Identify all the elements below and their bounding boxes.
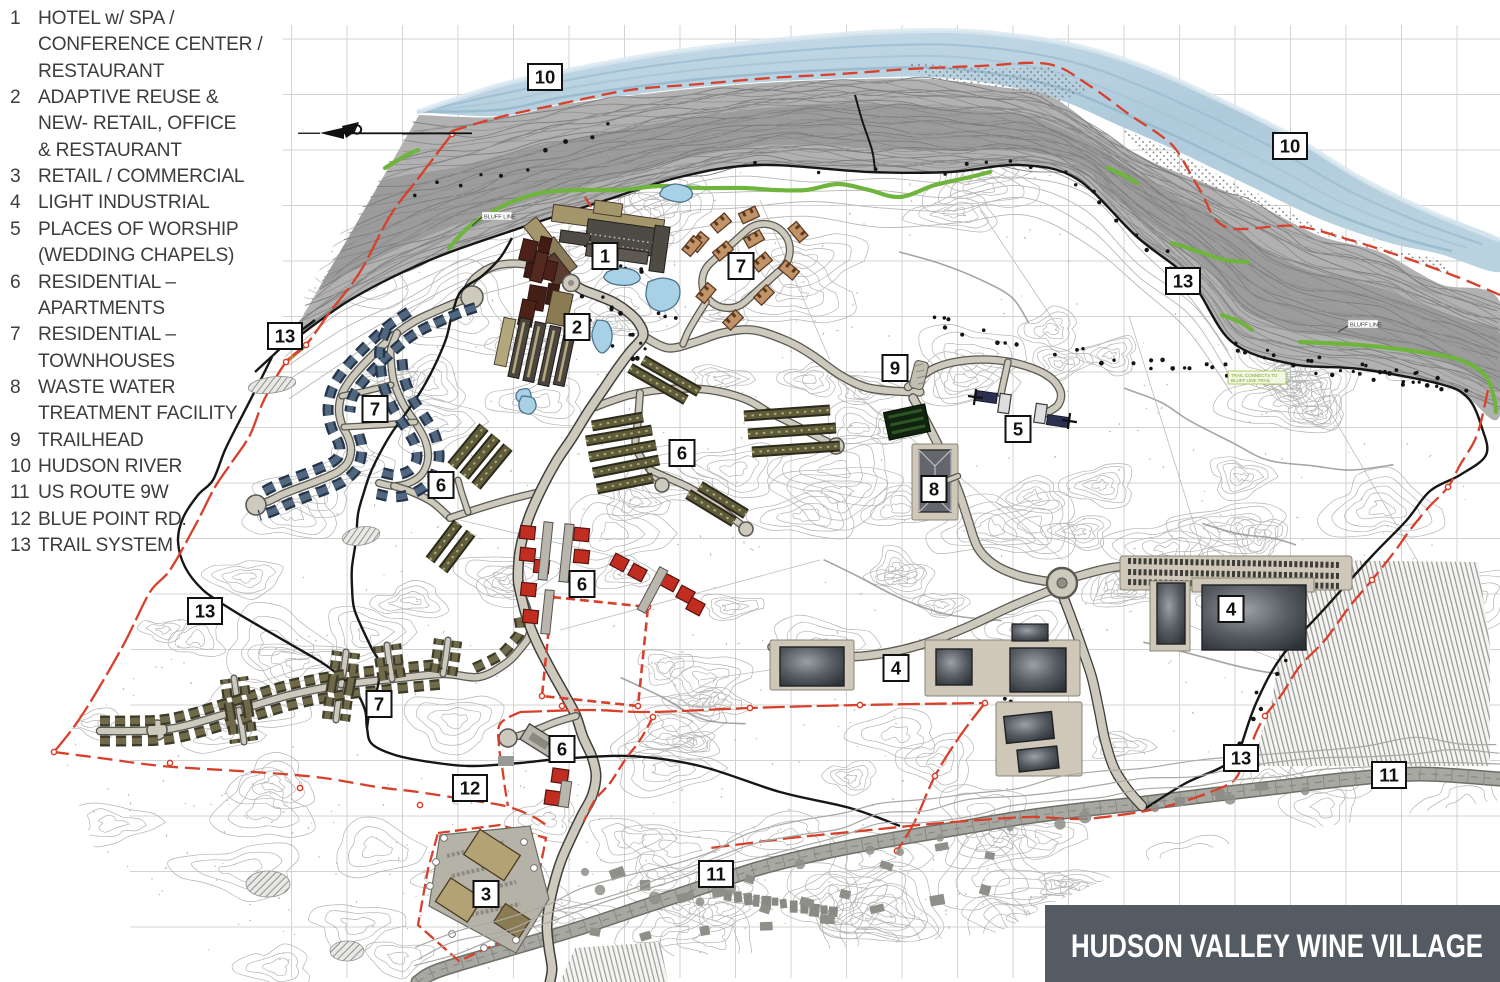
svg-text:6: 6 xyxy=(557,739,567,760)
svg-text:HUDSON RIVER: HUDSON RIVER xyxy=(38,456,182,477)
svg-text:2: 2 xyxy=(10,87,20,108)
svg-text:BLUE POINT RD.: BLUE POINT RD. xyxy=(38,509,187,530)
svg-text:(WEDDING CHAPELS): (WEDDING CHAPELS) xyxy=(38,245,234,266)
svg-text:11: 11 xyxy=(10,482,29,503)
svg-text:TOWNHOUSES: TOWNHOUSES xyxy=(38,351,175,372)
svg-text:10: 10 xyxy=(535,67,556,88)
svg-text:6: 6 xyxy=(436,475,446,496)
svg-text:13: 13 xyxy=(1173,271,1194,292)
svg-text:WASTE WATER: WASTE WATER xyxy=(38,377,175,398)
svg-text:3: 3 xyxy=(481,884,491,905)
svg-text:7: 7 xyxy=(10,324,20,345)
svg-text:3: 3 xyxy=(10,166,20,187)
svg-text:BLUFF LINE TRAIL: BLUFF LINE TRAIL xyxy=(1231,378,1271,383)
svg-text:13: 13 xyxy=(275,326,296,347)
svg-text:2: 2 xyxy=(572,317,582,338)
svg-text:10: 10 xyxy=(10,456,31,477)
svg-text:10: 10 xyxy=(1280,136,1301,157)
svg-text:6: 6 xyxy=(10,272,20,293)
svg-text:RETAIL / COMMERCIAL: RETAIL / COMMERCIAL xyxy=(38,166,245,187)
svg-text:8: 8 xyxy=(929,479,939,500)
svg-text:& RESTAURANT: & RESTAURANT xyxy=(38,140,182,161)
svg-text:TRAIL SYSTEM: TRAIL SYSTEM xyxy=(38,535,173,556)
svg-text:13: 13 xyxy=(10,535,31,556)
svg-text:13: 13 xyxy=(1231,748,1252,769)
svg-text:1: 1 xyxy=(600,246,610,267)
svg-text:5: 5 xyxy=(10,219,20,240)
svg-text:4: 4 xyxy=(1226,599,1237,620)
svg-text:4: 4 xyxy=(891,658,902,679)
svg-text:RESIDENTIAL –: RESIDENTIAL – xyxy=(38,324,176,345)
svg-text:9: 9 xyxy=(10,430,20,451)
svg-text:TRAILHEAD: TRAILHEAD xyxy=(38,430,143,451)
svg-text:7: 7 xyxy=(736,256,746,277)
svg-text:BLUFF LINE: BLUFF LINE xyxy=(1350,322,1382,328)
svg-text:US ROUTE 9W: US ROUTE 9W xyxy=(38,482,170,503)
svg-text:ADAPTIVE REUSE &: ADAPTIVE REUSE & xyxy=(38,87,219,108)
svg-text:13: 13 xyxy=(195,601,216,622)
svg-text:11: 11 xyxy=(706,864,726,885)
svg-text:4: 4 xyxy=(10,192,21,213)
svg-text:9: 9 xyxy=(890,358,900,379)
svg-text:7: 7 xyxy=(370,399,380,420)
svg-text:LIGHT INDUSTRIAL: LIGHT INDUSTRIAL xyxy=(38,192,210,213)
svg-text:11: 11 xyxy=(1379,765,1399,786)
svg-text:NEW- RETAIL, OFFICE: NEW- RETAIL, OFFICE xyxy=(38,113,236,134)
svg-text:8: 8 xyxy=(10,377,20,398)
svg-text:6: 6 xyxy=(577,574,587,595)
svg-text:12: 12 xyxy=(460,778,481,799)
svg-text:5: 5 xyxy=(1013,419,1023,440)
svg-text:PLACES OF WORSHIP: PLACES OF WORSHIP xyxy=(38,219,238,240)
svg-text:RESTAURANT: RESTAURANT xyxy=(38,61,165,82)
svg-text:BLUFF LINE: BLUFF LINE xyxy=(484,214,516,220)
svg-text:6: 6 xyxy=(677,443,687,464)
svg-text:HUDSON VALLEY WINE VILLAGE: HUDSON VALLEY WINE VILLAGE xyxy=(1071,928,1483,964)
svg-text:TREATMENT FACILITY: TREATMENT FACILITY xyxy=(38,403,238,424)
svg-text:CONFERENCE CENTER /: CONFERENCE CENTER / xyxy=(38,34,263,55)
svg-text:7: 7 xyxy=(374,694,384,715)
svg-text:APARTMENTS: APARTMENTS xyxy=(38,298,165,319)
svg-text:HOTEL w/ SPA /: HOTEL w/ SPA / xyxy=(38,8,175,29)
svg-text:RESIDENTIAL –: RESIDENTIAL – xyxy=(38,272,176,293)
svg-text:12: 12 xyxy=(10,509,31,530)
svg-text:1: 1 xyxy=(10,8,20,29)
